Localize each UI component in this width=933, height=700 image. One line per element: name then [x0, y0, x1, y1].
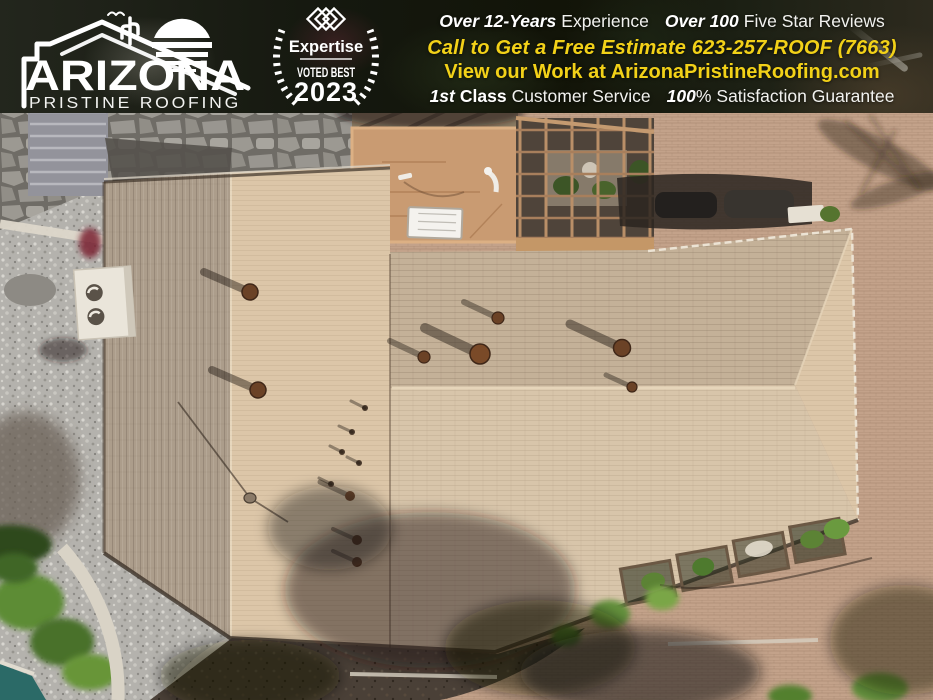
expertise-diamonds-icon [307, 8, 344, 29]
shade-structure [28, 104, 108, 196]
chimney [74, 266, 136, 340]
marketing-photo-card: ARIZONA PRISTINE ROOFING Expertise VOTED… [0, 0, 933, 700]
bougainvillea [79, 228, 101, 258]
carport-shadow [617, 174, 812, 230]
company-logo: ARIZONA PRISTINE ROOFING [10, 2, 260, 110]
badge-brand: Expertise [289, 38, 363, 56]
phone-cta[interactable]: Call to Get a Free Estimate 623-257-ROOF… [398, 36, 926, 60]
website-cta[interactable]: View our Work at ArizonaPristineRoofing.… [398, 60, 926, 84]
expertise-badge: Expertise VOTED BEST 2023 [262, 1, 390, 113]
logo-subtitle: PRISTINE ROOFING [29, 95, 241, 110]
reviews-bold: Over 100 [665, 11, 739, 31]
bush [820, 206, 840, 222]
header-text-block: Over 12-YearsExperienceOver 100Five Star… [398, 9, 926, 108]
car [724, 190, 794, 218]
experience-bold: Over 12-Years [439, 11, 556, 31]
white-planter [787, 205, 824, 223]
roof-north-slope [390, 228, 852, 388]
badge-year: 2023 [294, 77, 358, 107]
logo-title: ARIZONA [25, 52, 245, 100]
bird-icon [108, 13, 124, 16]
experience-line: Over 12-YearsExperienceOver 100Five Star… [398, 9, 926, 33]
car [655, 192, 717, 218]
header-banner: ARIZONA PRISTINE ROOFING Expertise VOTED… [0, 0, 933, 113]
service-line: 1stClassCustomer Service100%Satisfaction… [398, 84, 926, 108]
